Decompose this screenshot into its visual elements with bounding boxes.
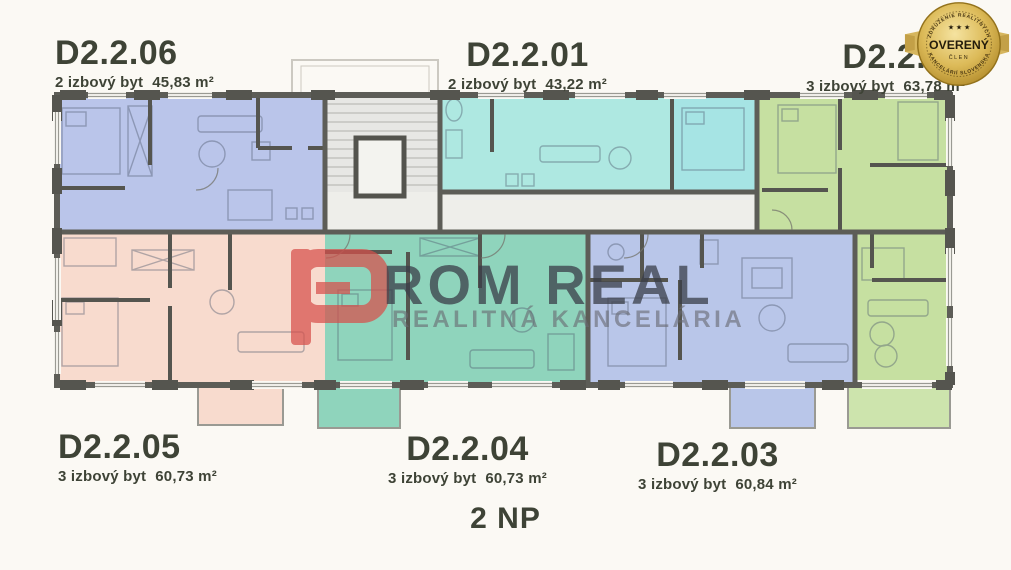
apartment-code: D2.2.01 (430, 38, 625, 74)
apartment-type: 3 izbový byt (806, 78, 894, 95)
apartment-area-text: 60,73 m² (155, 468, 217, 485)
badge-stars: ★ ★ ★ (948, 23, 970, 31)
apartment-area-d2206 (57, 95, 325, 232)
entrance-canopy (292, 60, 438, 93)
elevator-shaft (356, 138, 404, 196)
verified-member-badge: ZDRUŽENIE REALITNÝCH KANCELÁRIÍ SLOVENSK… (903, 0, 1011, 92)
apartment-type: 3 izbový byt (638, 476, 726, 493)
apartment-area-d2201 (440, 95, 672, 192)
apartment-code: D2.2.06 (55, 36, 214, 72)
apartment-type: 2 izbový byt (448, 76, 536, 93)
balcony-d2202 (848, 385, 950, 428)
apartment-label-d2205: D2.2.05 3 izbový byt60,73 m² (58, 430, 217, 484)
apartment-type: 3 izbový byt (388, 470, 476, 487)
apartment-subtitle: 3 izbový byt60,73 m² (375, 471, 560, 487)
apartment-subtitle: 2 izbový byt43,22 m² (430, 77, 625, 93)
apartment-label-d2201: D2.2.01 2 izbový byt43,22 m² (430, 38, 625, 92)
badge-title: OVERENÝ (929, 37, 989, 52)
apartment-label-d2204: D2.2.04 3 izbový byt60,73 m² (375, 432, 560, 486)
floorplan-page: D2.2.06 2 izbový byt45,83 m² D2.2.01 2 i… (0, 0, 1011, 570)
apartment-area-text: 45,83 m² (152, 74, 214, 91)
apartment-label-d2203: D2.2.03 3 izbový byt60,84 m² (625, 438, 810, 492)
apartment-area-text: 60,73 m² (485, 470, 547, 487)
apartment-code: D2.2.04 (375, 432, 560, 468)
apartment-type: 2 izbový byt (55, 74, 143, 91)
apartment-subtitle: 2 izbový byt45,83 m² (55, 75, 214, 91)
apartment-type: 3 izbový byt (58, 468, 146, 485)
apartment-area-text: 60,84 m² (735, 476, 797, 493)
apartment-subtitle: 3 izbový byt60,73 m² (58, 469, 217, 485)
apartment-area-text: 43,22 m² (545, 76, 607, 93)
balcony-d2205 (198, 385, 283, 425)
floor-number: 2 NP (0, 502, 1011, 536)
apartment-code: D2.2.03 (625, 438, 810, 474)
apartment-area-d2205 (57, 232, 325, 385)
apartment-code: D2.2.05 (58, 430, 217, 466)
apartment-subtitle: 3 izbový byt60,84 m² (625, 477, 810, 493)
balcony-d2204 (318, 385, 400, 428)
balconies (198, 385, 950, 428)
apartment-label-d2206: D2.2.06 2 izbový byt45,83 m² (55, 36, 214, 90)
balcony-d2203 (730, 385, 815, 428)
badge-subtitle: ČLEN (949, 54, 969, 61)
